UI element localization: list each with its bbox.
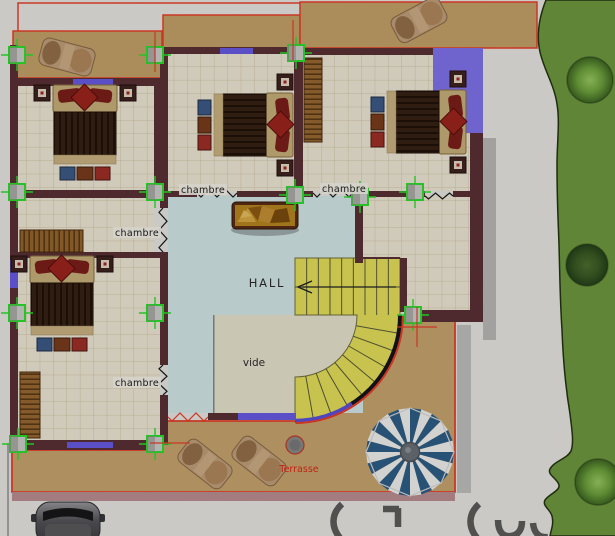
floor-plan-drawing: chambre chambre chambre chambre HALL vid… (0, 0, 615, 536)
floor-plan-canvas: chambre chambre chambre chambre HALL vid… (0, 0, 615, 536)
texture-overlay (0, 0, 615, 536)
